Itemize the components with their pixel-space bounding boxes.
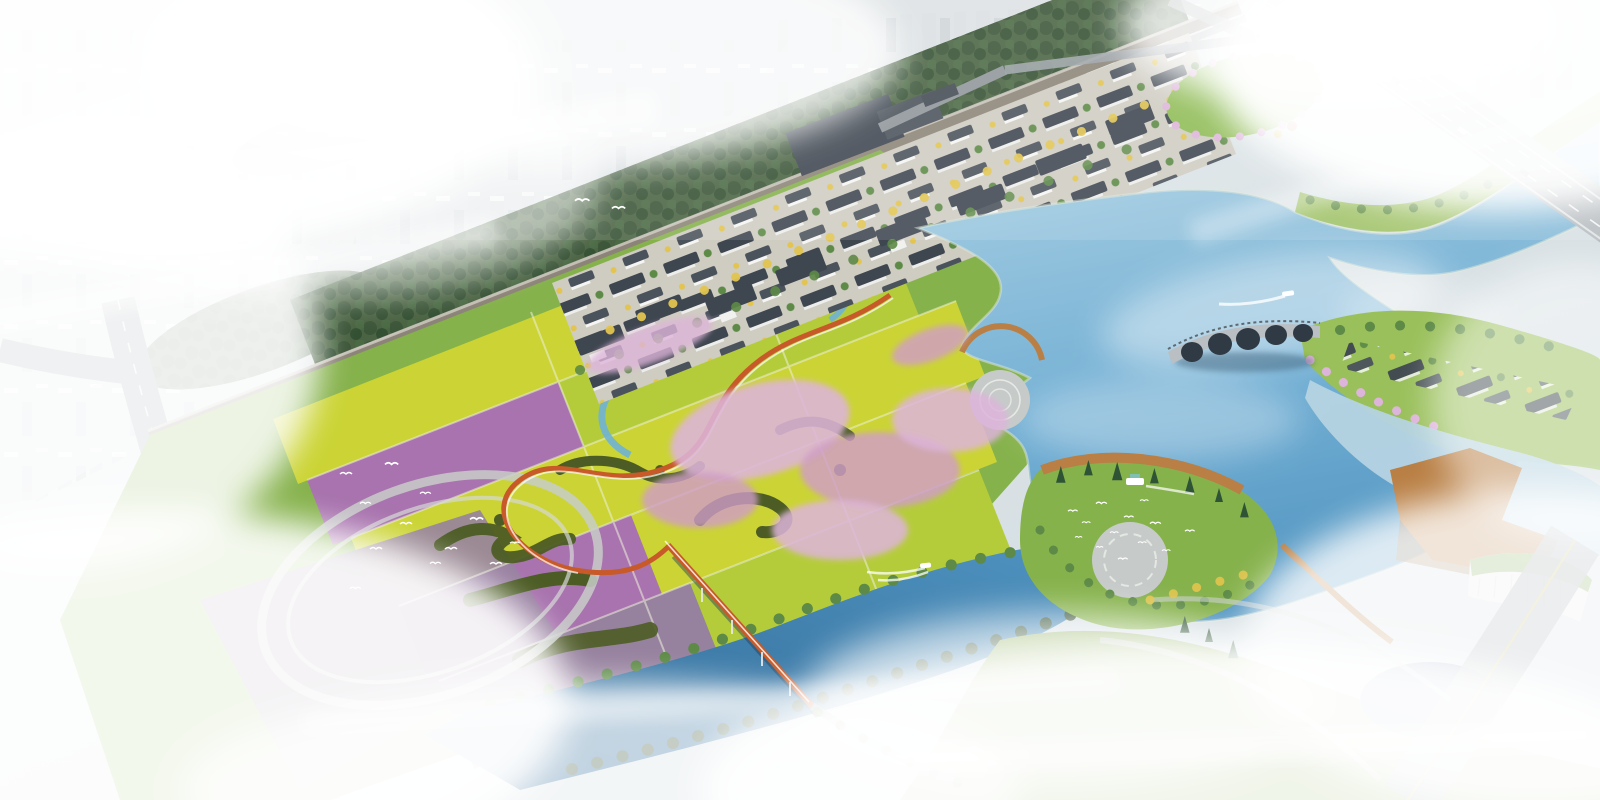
rendering-canvas [0, 0, 1600, 800]
aerial-render [0, 0, 1600, 800]
